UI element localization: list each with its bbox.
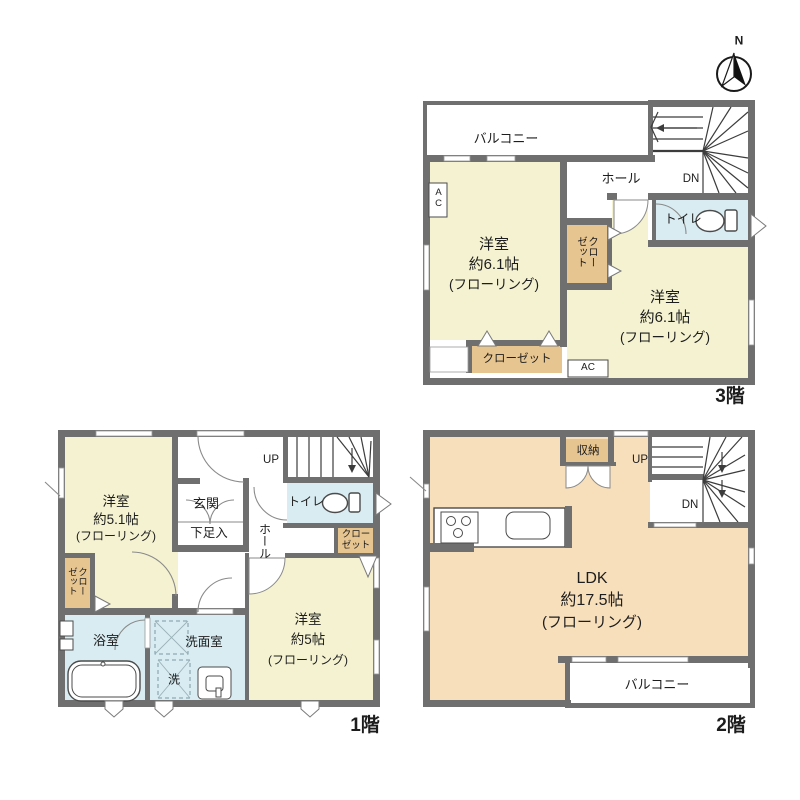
floor2-balcony-label: バルコニー — [625, 677, 690, 693]
stove-icon — [441, 512, 478, 543]
floor3-stairs — [651, 107, 748, 193]
room-size: 約17.5帖 — [542, 590, 642, 612]
washbasin-icon — [198, 667, 231, 699]
floor3-stairs-arrow — [656, 124, 664, 132]
floor3-name: 3階 — [715, 385, 745, 409]
floor3-balcony-label: バルコニー — [474, 131, 539, 147]
floor1-toilet-label: トイレ — [288, 495, 324, 510]
north-label: N — [735, 34, 744, 49]
floor3-closet-between-label: クローゼット — [576, 236, 598, 272]
floor1-bathroom-label: 浴室 — [93, 633, 119, 649]
floor2-ldk-label: LDK 約17.5帖 (フローリング) — [542, 568, 642, 634]
room-flooring: (フローリング) — [76, 528, 156, 546]
floor3-hall-label: ホール — [601, 171, 640, 187]
room-flooring: (フローリング) — [268, 650, 348, 670]
room-name: 洋室 — [76, 493, 156, 511]
floor3-ac-left-label: AC — [433, 187, 443, 213]
room-name: LDK — [542, 568, 642, 590]
floor3-closet-bottom-label: クローゼット — [483, 352, 552, 366]
floor3-dn-label: DN — [683, 172, 700, 186]
room-size: 約5.1帖 — [76, 510, 156, 528]
room-size: 約6.1帖 — [620, 308, 710, 328]
floor2-dn-label: DN — [682, 498, 699, 512]
floor1-plan — [45, 430, 391, 717]
floor1-room-upper-left-label: 洋室 約5.1帖 (フローリング) — [76, 493, 156, 546]
room-name: 洋室 — [620, 288, 710, 308]
floor1-name: 1階 — [350, 714, 380, 738]
floor3-ac-bottom-label: AC — [581, 362, 595, 375]
floor1-entrance-label: 玄関 — [193, 496, 219, 512]
floor3-room-right-label: 洋室 約6.1帖 (フローリング) — [620, 288, 710, 348]
room-flooring: (フローリング) — [620, 328, 710, 348]
floor1-shoebox-label: 下足入 — [190, 526, 228, 542]
floorplan-canvas: N バルコニー ホール DN トイレ 洋室 約6.1帖 (フローリング) 洋室 … — [0, 0, 800, 800]
floor2-storage-label: 収納 — [577, 444, 600, 458]
floor1-washroom-label: 洗面室 — [185, 635, 223, 651]
room-size: 約6.1帖 — [449, 255, 539, 275]
room-flooring: (フローリング) — [449, 275, 539, 295]
window-arrow-mark — [751, 214, 766, 238]
floor1-up-label: UP — [263, 453, 279, 467]
floor3-toilet-label: トイレ — [664, 212, 702, 228]
floor1-closet-left-label: クローゼット — [66, 567, 86, 601]
floor1-hall-label: ホール — [258, 523, 271, 571]
north-arrow-icon — [717, 53, 751, 91]
floor1-room-lower-right-label: 洋室 約5帖 (フローリング) — [268, 610, 348, 670]
toilet-icon — [696, 210, 737, 232]
room-flooring: (フローリング) — [542, 612, 642, 634]
floor3-room-left-label: 洋室 約6.1帖 (フローリング) — [449, 235, 539, 295]
floor2-name: 2階 — [716, 714, 746, 738]
floor1-closet-right-label: クローゼット — [339, 529, 373, 551]
floor1-laundry-label: 洗 — [168, 673, 180, 688]
room-name: 洋室 — [268, 610, 348, 630]
room-size: 約5帖 — [268, 630, 348, 650]
floor2-up-label: UP — [632, 453, 648, 467]
floor1-stairs — [297, 437, 371, 477]
toilet-icon — [323, 493, 361, 513]
room-name: 洋室 — [449, 235, 539, 255]
kitchen-sink-icon — [506, 512, 550, 539]
